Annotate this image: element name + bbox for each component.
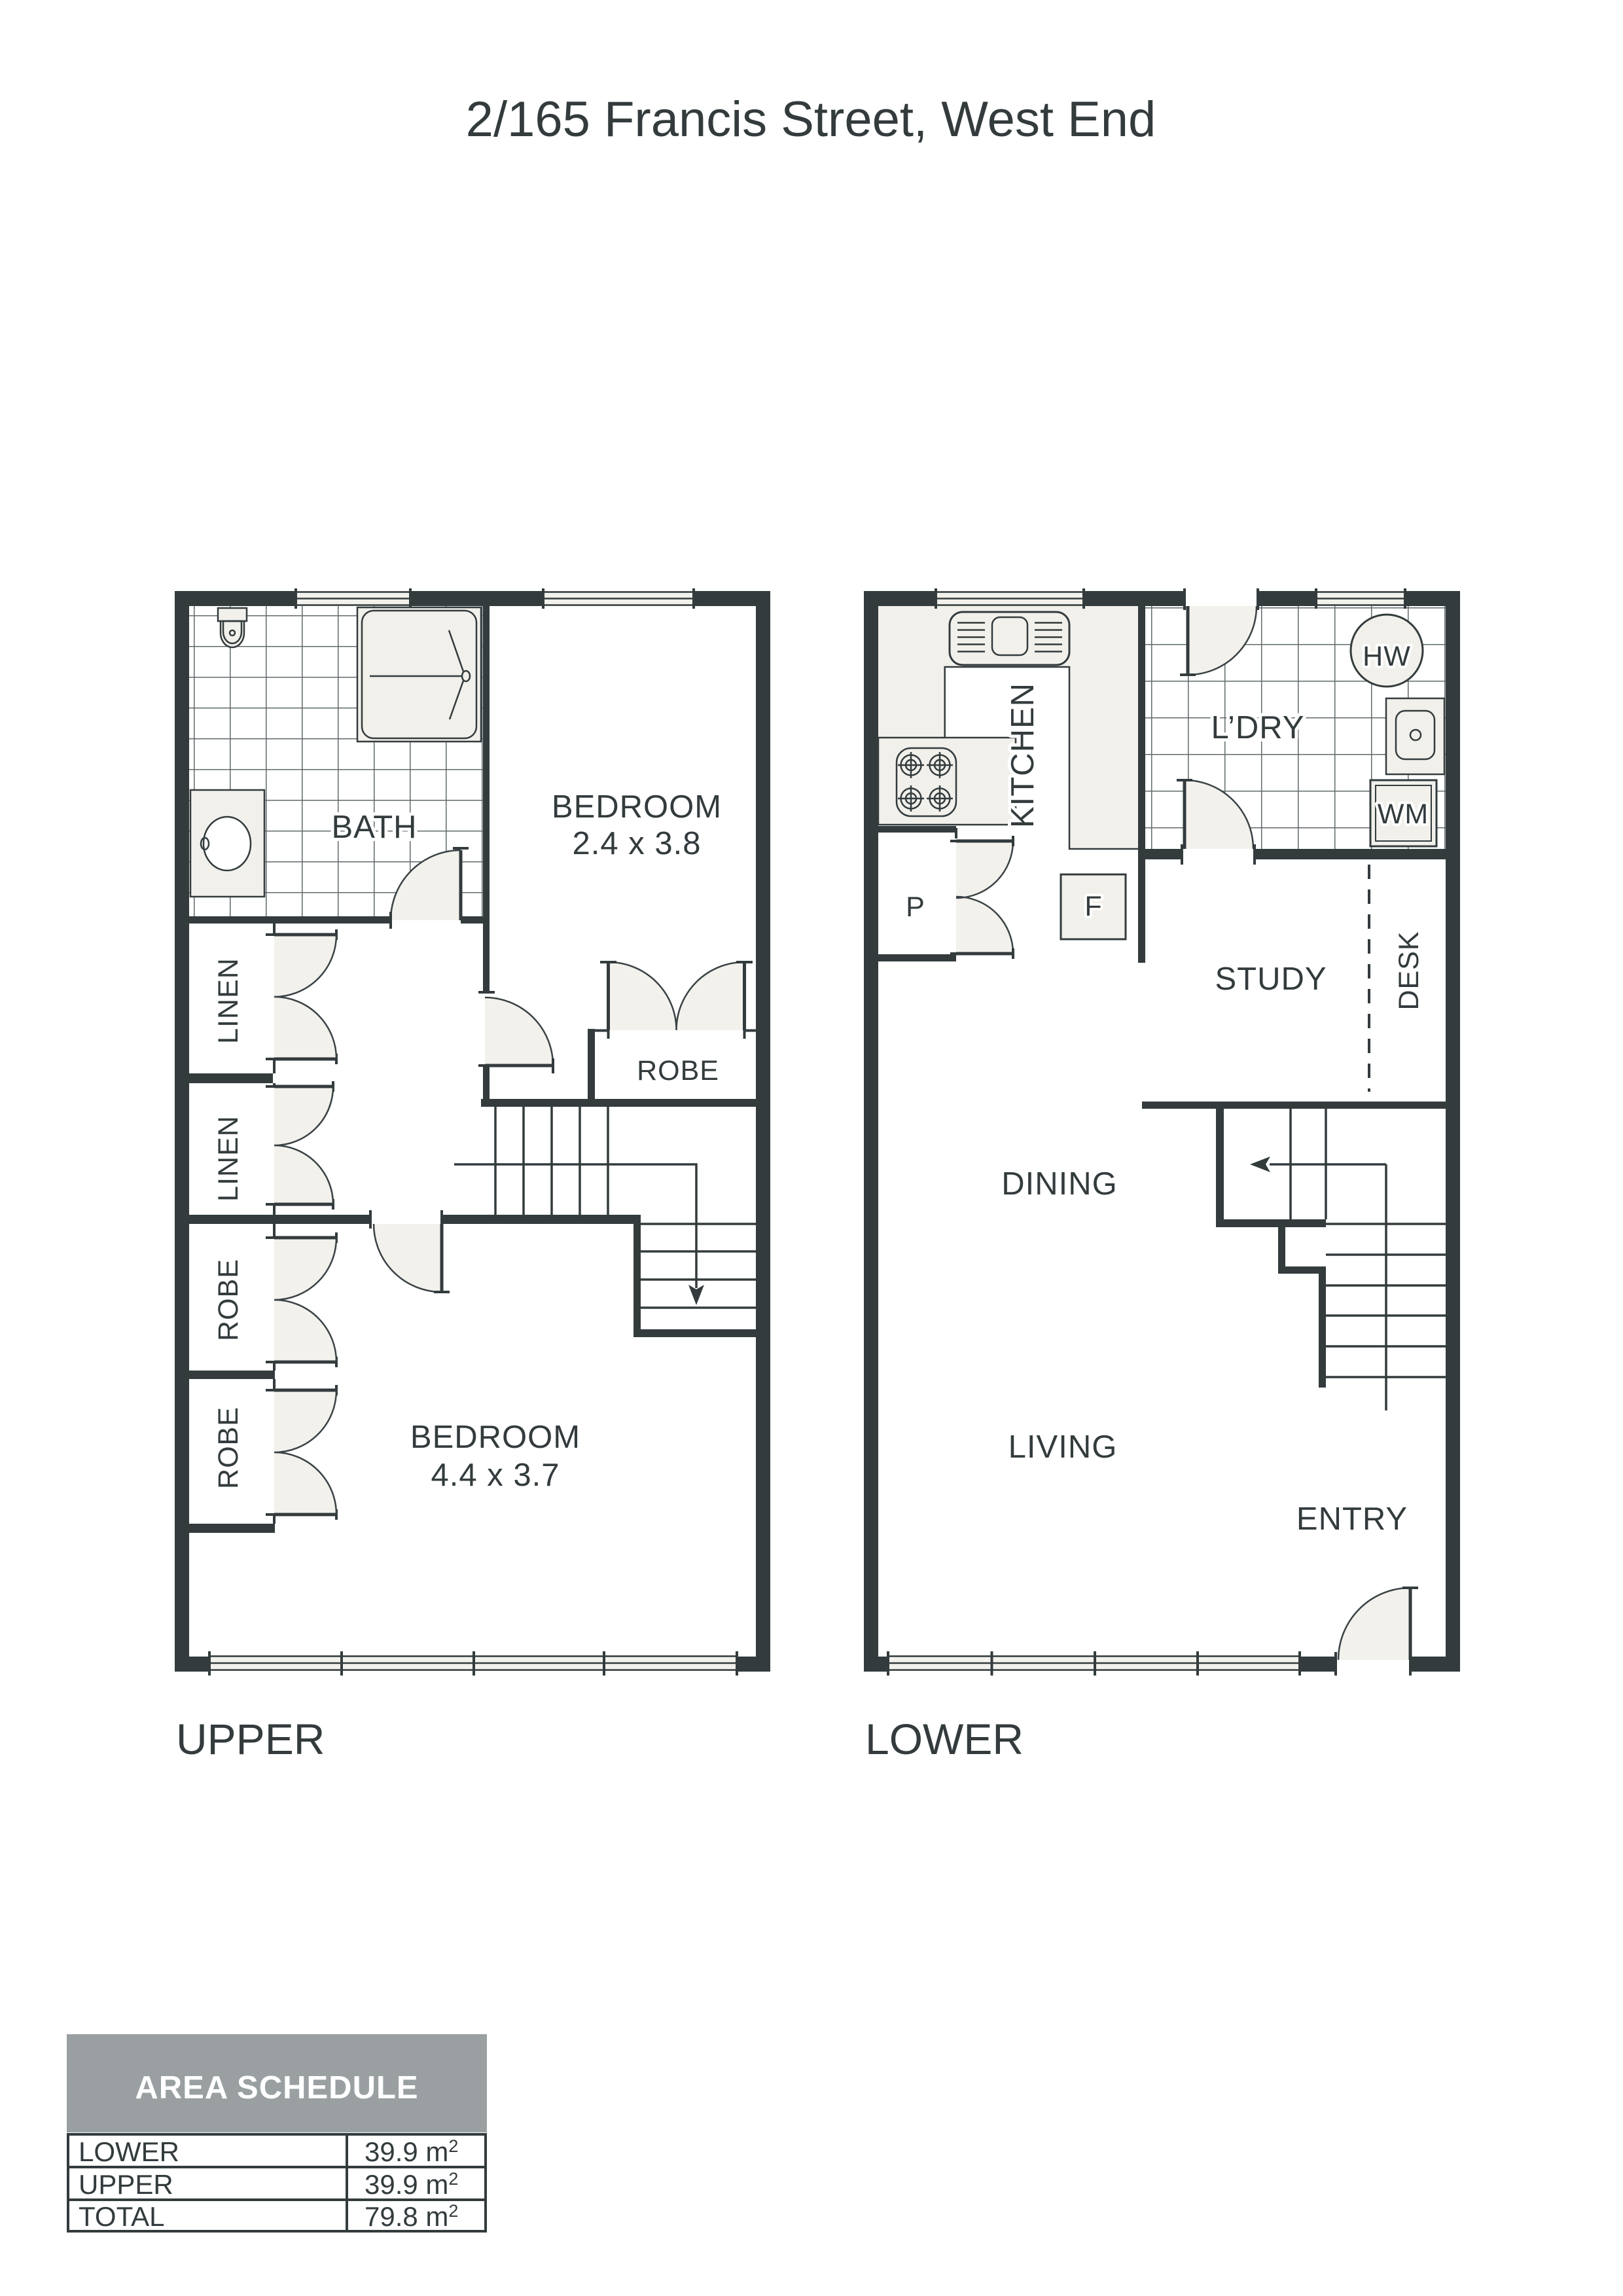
svg-text:HW: HW (1363, 641, 1411, 672)
svg-text:BATH: BATH (331, 810, 417, 845)
svg-text:ROBE: ROBE (213, 1407, 244, 1489)
svg-text:WM: WM (1378, 798, 1429, 830)
svg-text:DINING: DINING (1001, 1166, 1118, 1202)
svg-text:4.4 x 3.7: 4.4 x 3.7 (431, 1458, 560, 1493)
svg-text:ROBE: ROBE (637, 1055, 719, 1086)
svg-text:KITCHEN: KITCHEN (1005, 683, 1041, 828)
svg-text:39.9 m2: 39.9 m2 (365, 2136, 458, 2167)
svg-text:P: P (906, 891, 925, 923)
svg-text:STUDY: STUDY (1215, 961, 1327, 997)
svg-text:DESK: DESK (1393, 931, 1425, 1010)
svg-text:LINEN: LINEN (213, 958, 244, 1044)
svg-text:UPPER: UPPER (79, 2169, 173, 2200)
svg-text:2/165 Francis Street, West End: 2/165 Francis Street, West End (466, 92, 1156, 147)
svg-text:79.8 m2: 79.8 m2 (365, 2201, 458, 2232)
svg-text:BEDROOM: BEDROOM (410, 1420, 580, 1455)
svg-text:TOTAL: TOTAL (79, 2201, 164, 2232)
svg-text:BEDROOM: BEDROOM (552, 789, 722, 825)
svg-text:LIVING: LIVING (1008, 1429, 1118, 1465)
svg-text:LOWER: LOWER (79, 2136, 179, 2167)
svg-text:F: F (1084, 891, 1102, 922)
svg-text:UPPER: UPPER (176, 1715, 325, 1763)
svg-text:L’DRY: L’DRY (1211, 710, 1304, 745)
svg-text:ROBE: ROBE (213, 1259, 244, 1341)
svg-text:LINEN: LINEN (213, 1115, 244, 1202)
svg-text:ENTRY: ENTRY (1296, 1501, 1408, 1537)
svg-text:39.9 m2: 39.9 m2 (365, 2169, 458, 2200)
svg-text:LOWER: LOWER (865, 1715, 1024, 1763)
svg-text:2.4 x 3.8: 2.4 x 3.8 (573, 826, 702, 861)
svg-text:AREA SCHEDULE: AREA SCHEDULE (135, 2070, 418, 2106)
